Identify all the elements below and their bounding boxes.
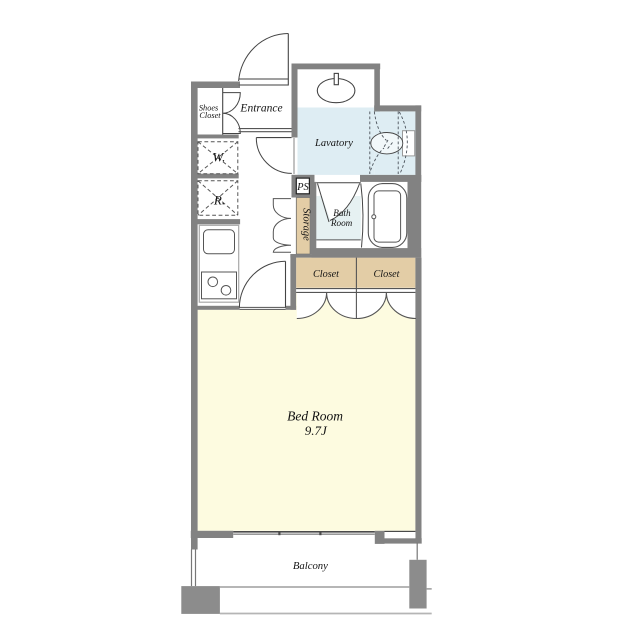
svg-text:Closet: Closet xyxy=(313,269,340,280)
svg-text:W.: W. xyxy=(213,150,226,165)
svg-text:R.: R. xyxy=(213,193,225,208)
svg-text:Lavatory: Lavatory xyxy=(314,138,353,149)
svg-text:Balcony: Balcony xyxy=(293,560,328,572)
svg-text:Closet: Closet xyxy=(373,269,400,280)
svg-text:Storage: Storage xyxy=(300,208,311,241)
svg-text:Bed Room: Bed Room xyxy=(287,408,343,423)
svg-text:Bath: Bath xyxy=(333,208,351,218)
svg-text:Room: Room xyxy=(330,218,353,228)
svg-text:PS: PS xyxy=(296,182,309,193)
svg-text:Entrance: Entrance xyxy=(239,103,282,115)
svg-text:Closet: Closet xyxy=(199,111,221,120)
svg-text:9.7J: 9.7J xyxy=(305,423,328,438)
